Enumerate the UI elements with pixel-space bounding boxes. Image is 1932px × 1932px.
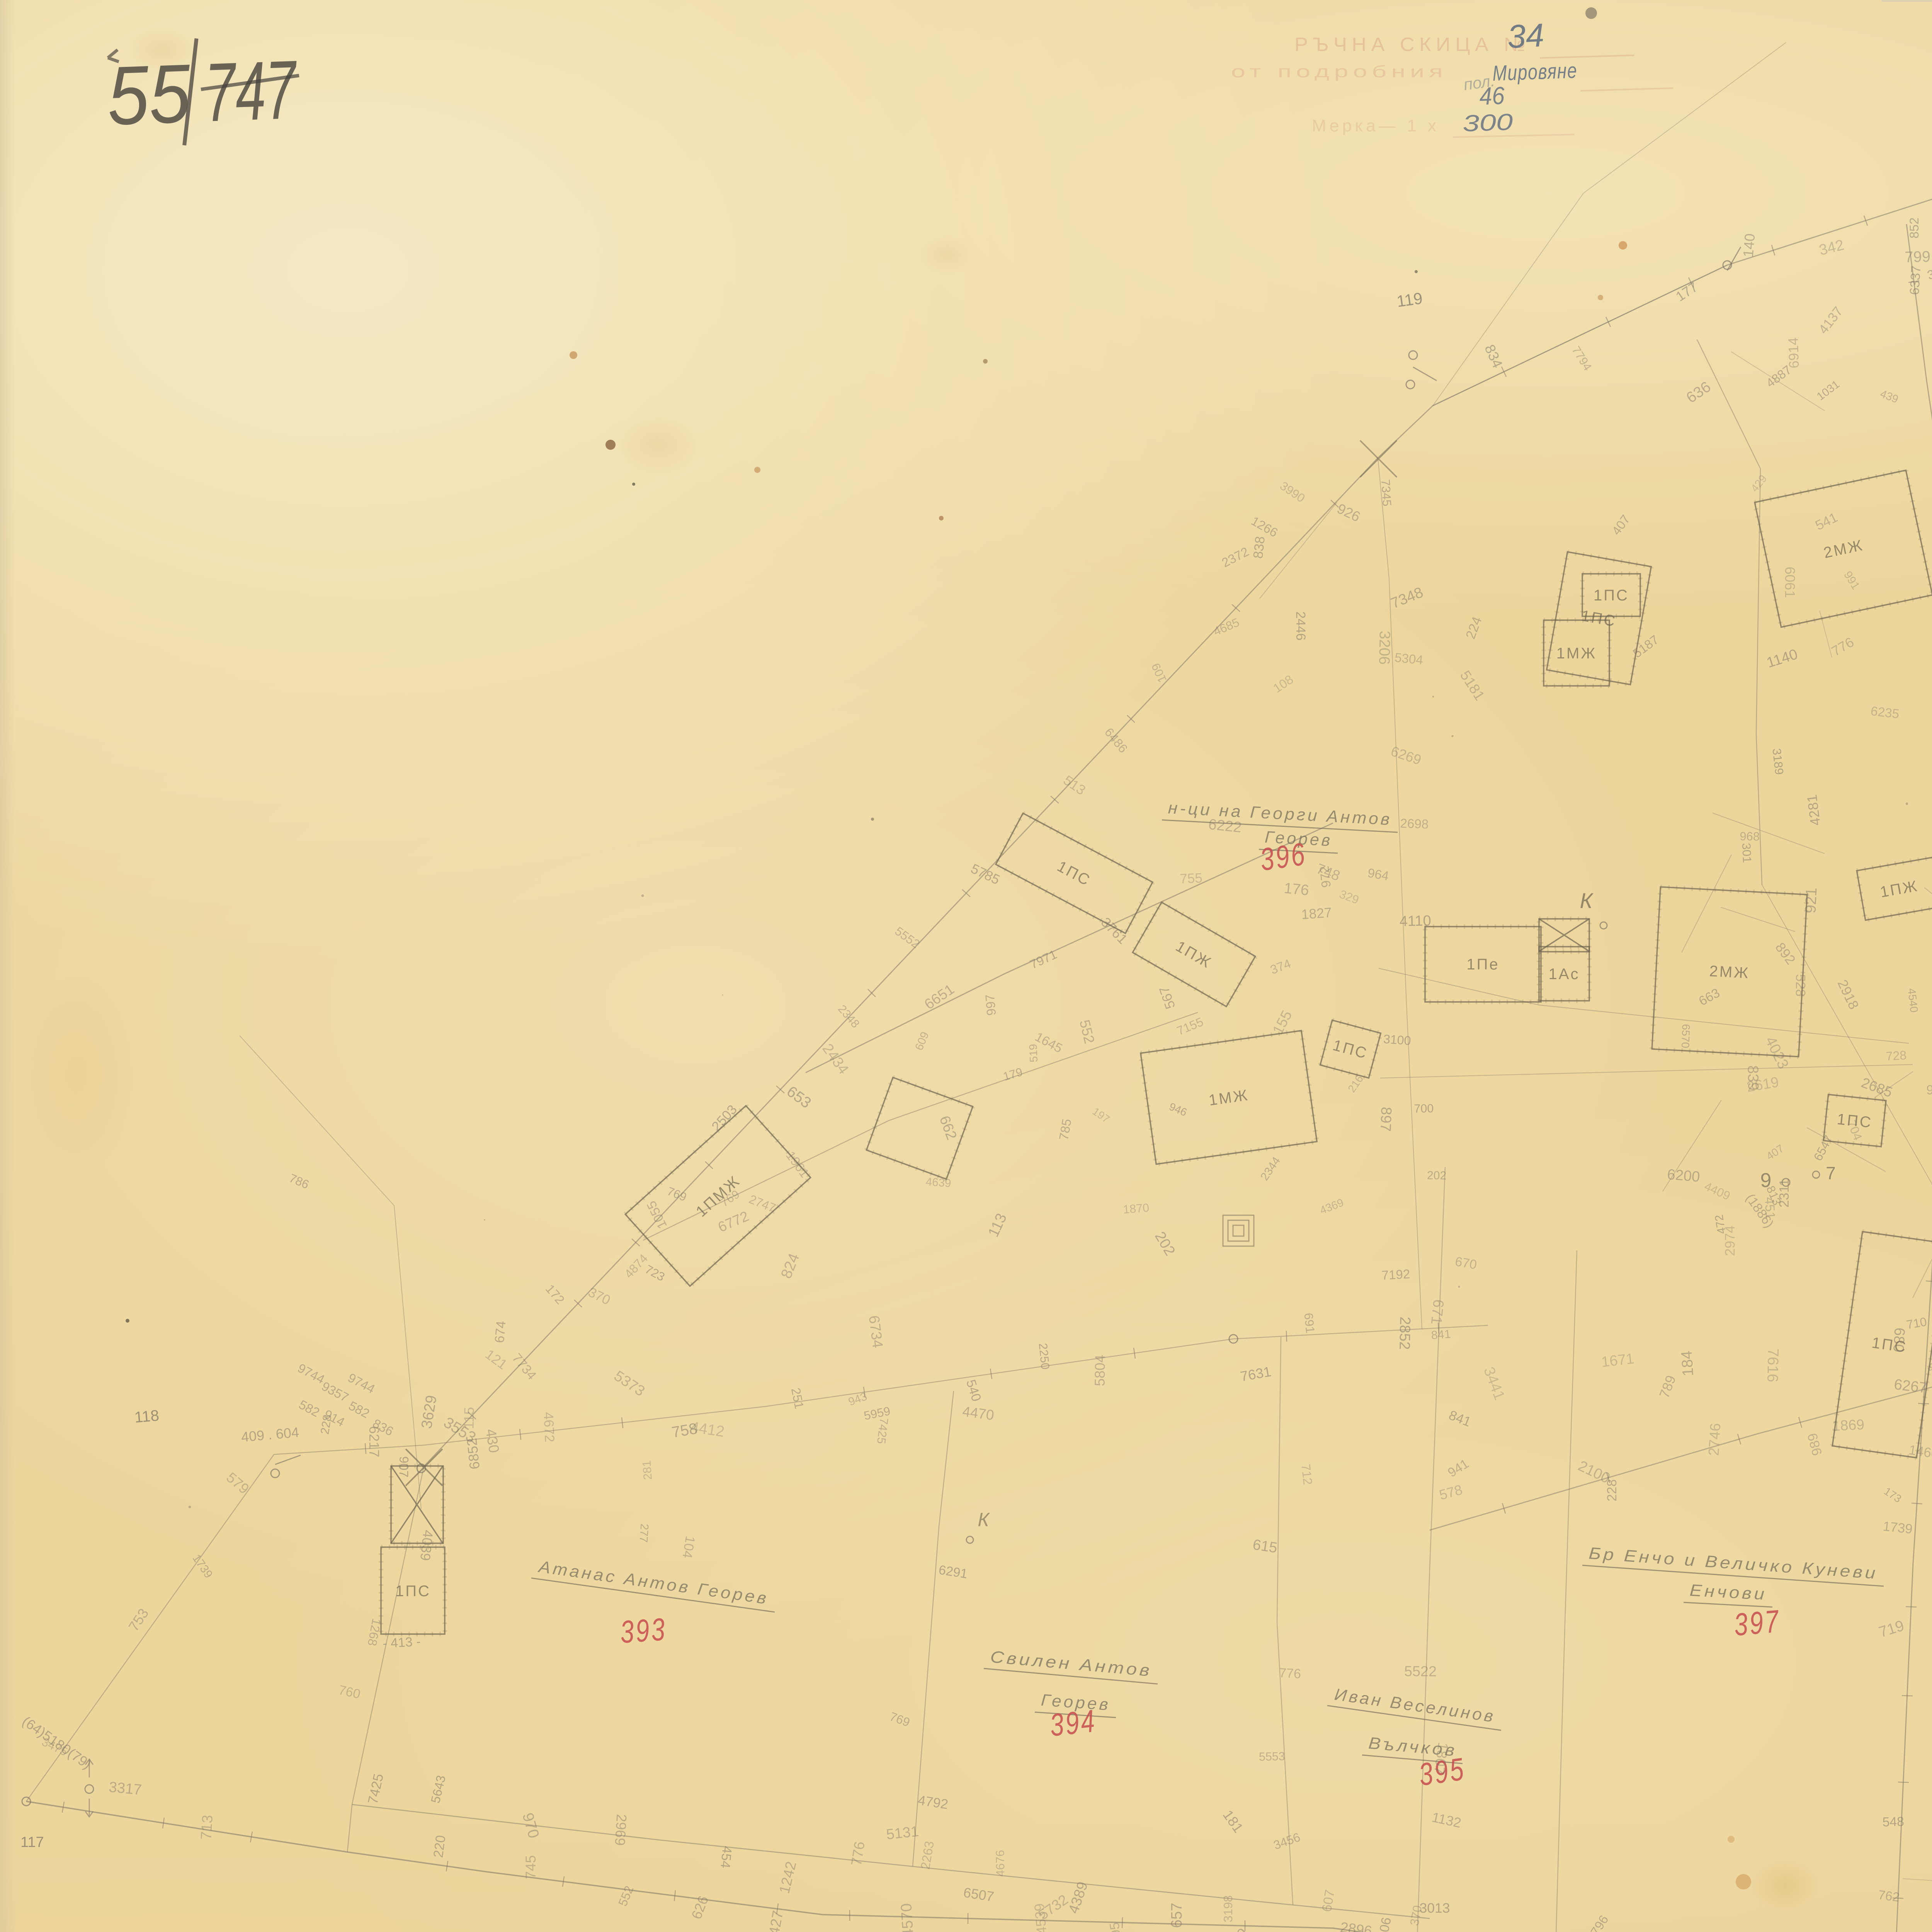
svg-text:РЪЧНА СКИЦА №: РЪЧНА СКИЦА № [1294, 34, 1530, 55]
svg-text:6852: 6852 [464, 1437, 483, 1470]
svg-text:674: 674 [492, 1320, 509, 1344]
svg-text:897: 897 [1377, 1107, 1395, 1132]
svg-text:2969: 2969 [612, 1814, 630, 1846]
svg-text:от подробния: от подробния [1231, 62, 1447, 81]
svg-text:4676: 4676 [993, 1850, 1007, 1877]
svg-text:964: 964 [1926, 1083, 1932, 1097]
svg-text:762: 762 [1877, 1888, 1900, 1905]
svg-text:6200: 6200 [1667, 1166, 1701, 1185]
svg-text:700: 700 [1414, 1102, 1434, 1116]
svg-text:1870: 1870 [1122, 1201, 1150, 1216]
svg-text:220: 220 [430, 1834, 448, 1859]
svg-text:4110: 4110 [1399, 912, 1431, 930]
svg-text:2698: 2698 [1400, 816, 1429, 832]
svg-text:841: 841 [1431, 1327, 1451, 1342]
svg-text:300: 300 [1462, 109, 1513, 136]
svg-text:745: 745 [522, 1855, 539, 1879]
svg-text:3189: 3189 [1770, 748, 1786, 776]
svg-text:5131: 5131 [886, 1823, 920, 1843]
svg-text:747: 747 [204, 43, 299, 139]
svg-text:34: 34 [1507, 17, 1545, 56]
svg-text:921: 921 [1802, 887, 1820, 913]
svg-text:394: 394 [1048, 1703, 1098, 1743]
svg-text:519: 519 [1027, 1044, 1040, 1063]
svg-text:1Пе: 1Пе [1466, 956, 1499, 973]
svg-text:4639: 4639 [925, 1175, 952, 1190]
svg-text:6914: 6914 [1785, 337, 1802, 369]
svg-text:713: 713 [198, 1814, 216, 1840]
svg-text:- 413 -: - 413 - [382, 1634, 421, 1651]
svg-text:2746: 2746 [1706, 1423, 1724, 1456]
svg-text:117: 117 [20, 1834, 44, 1850]
svg-text:202: 202 [1427, 1169, 1447, 1182]
svg-text:7616: 7616 [1764, 1348, 1782, 1383]
svg-text:2852: 2852 [1396, 1316, 1413, 1350]
svg-text:6337: 6337 [1907, 265, 1924, 295]
svg-text:396: 396 [1258, 836, 1308, 878]
svg-text:1739: 1739 [1882, 1519, 1913, 1537]
svg-text:5522: 5522 [1404, 1663, 1437, 1679]
svg-text:680: 680 [1890, 1327, 1908, 1353]
svg-text:176: 176 [1283, 880, 1310, 899]
svg-text:397: 397 [1733, 1604, 1782, 1643]
svg-text:119: 119 [1396, 289, 1424, 311]
svg-text:691: 691 [1302, 1312, 1318, 1334]
svg-text:528: 528 [1793, 974, 1808, 997]
svg-text:4672: 4672 [541, 1412, 557, 1443]
svg-text:712: 712 [1299, 1463, 1315, 1486]
svg-text:852: 852 [1907, 218, 1921, 239]
svg-text:Мировяне: Мировяне [1492, 58, 1578, 85]
svg-text:277: 277 [637, 1523, 650, 1543]
svg-text:1Ас: 1Ас [1549, 966, 1580, 983]
svg-text:4570: 4570 [898, 1903, 917, 1932]
svg-text:393: 393 [619, 1612, 668, 1650]
svg-text:728: 728 [1886, 1048, 1907, 1063]
svg-text:1ПС: 1ПС [395, 1583, 431, 1600]
svg-text:1827: 1827 [1301, 905, 1332, 922]
svg-text:5553: 5553 [1259, 1750, 1285, 1763]
svg-text:454: 454 [718, 1845, 735, 1869]
svg-text:657: 657 [1168, 1903, 1185, 1928]
svg-text:4540: 4540 [1905, 988, 1920, 1013]
svg-text:3100: 3100 [1383, 1032, 1412, 1048]
svg-text:3198: 3198 [1221, 1895, 1235, 1922]
svg-text:548: 548 [1882, 1815, 1904, 1829]
svg-text:К: К [1580, 888, 1594, 913]
svg-text:2446: 2446 [1293, 611, 1308, 641]
svg-text:6217: 6217 [366, 1426, 382, 1457]
svg-text:140: 140 [1740, 233, 1758, 258]
svg-text:Мерка— 1 х: Мерка— 1 х [1312, 116, 1439, 135]
svg-text:2250: 2250 [1036, 1342, 1052, 1370]
svg-text:1МЖ: 1МЖ [1556, 645, 1597, 662]
svg-text:755: 755 [1179, 871, 1202, 887]
svg-text:7: 7 [1826, 1163, 1836, 1183]
svg-text:3206: 3206 [1376, 631, 1393, 665]
svg-text:6222: 6222 [1207, 816, 1242, 836]
svg-text:907: 907 [397, 1456, 412, 1478]
svg-text:3317: 3317 [108, 1779, 143, 1798]
svg-text:6061: 6061 [1782, 566, 1798, 598]
svg-text:6570: 6570 [1679, 1024, 1692, 1049]
svg-text:838: 838 [1251, 536, 1268, 560]
svg-text:3013: 3013 [1420, 1900, 1450, 1916]
svg-text:118: 118 [134, 1407, 160, 1426]
svg-text:5304: 5304 [1394, 651, 1424, 668]
svg-text:К: К [978, 1509, 990, 1531]
svg-text:2МЖ: 2МЖ [1709, 963, 1750, 981]
svg-text:7345: 7345 [1379, 479, 1394, 507]
svg-text:184: 184 [1678, 1350, 1697, 1377]
svg-text:671: 671 [1428, 1299, 1447, 1325]
svg-text:7192: 7192 [1381, 1267, 1411, 1283]
svg-text:5804: 5804 [1092, 1355, 1108, 1386]
svg-text:4039: 4039 [417, 1529, 436, 1561]
svg-text:301: 301 [1740, 843, 1754, 864]
svg-text:281: 281 [640, 1460, 655, 1480]
svg-text:799: 799 [1905, 248, 1931, 266]
svg-text:1869: 1869 [1832, 1416, 1865, 1434]
svg-text:1ПС: 1ПС [1594, 587, 1629, 604]
svg-text:968: 968 [1740, 830, 1760, 844]
svg-text:997: 997 [983, 994, 998, 1016]
svg-text:776: 776 [1279, 1666, 1301, 1682]
